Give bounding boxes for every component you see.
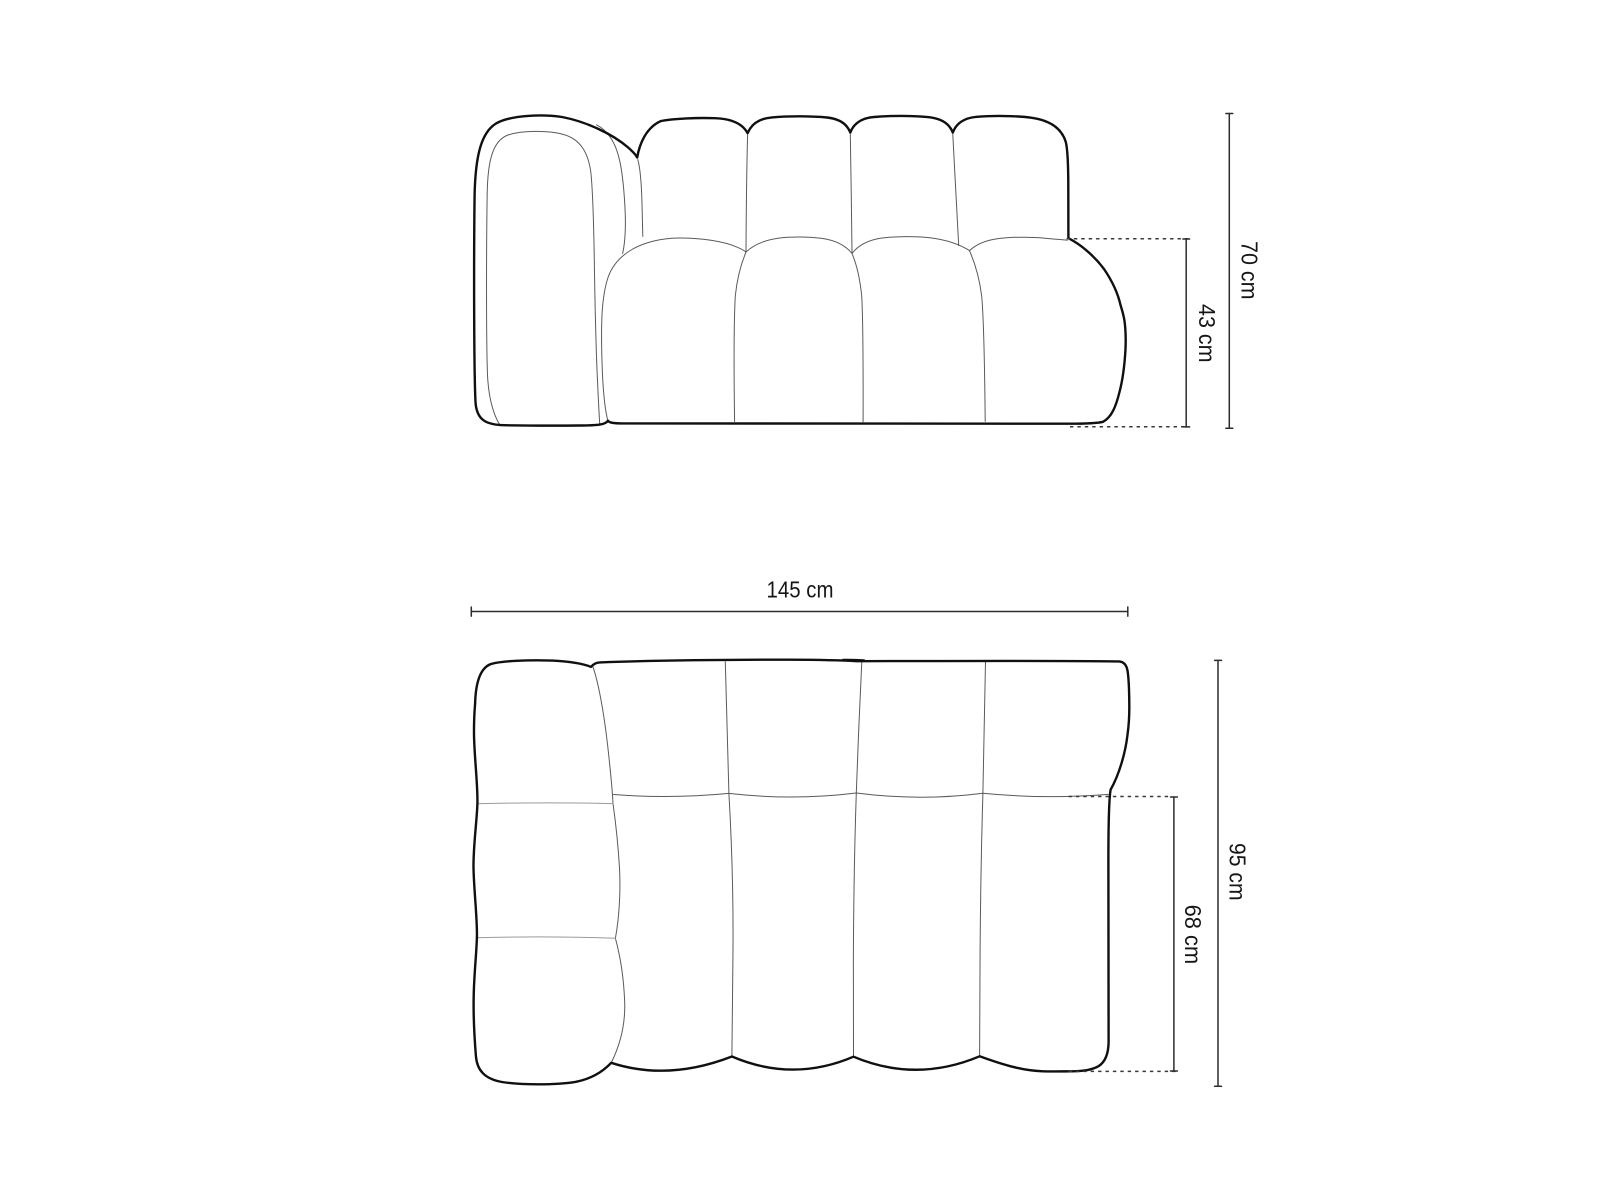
svg-text:43 cm: 43 cm — [1194, 304, 1220, 363]
svg-text:95 cm: 95 cm — [1225, 843, 1251, 901]
svg-text:68 cm: 68 cm — [1180, 905, 1206, 965]
svg-text:70 cm: 70 cm — [1237, 241, 1263, 300]
svg-text:145 cm: 145 cm — [767, 577, 834, 603]
